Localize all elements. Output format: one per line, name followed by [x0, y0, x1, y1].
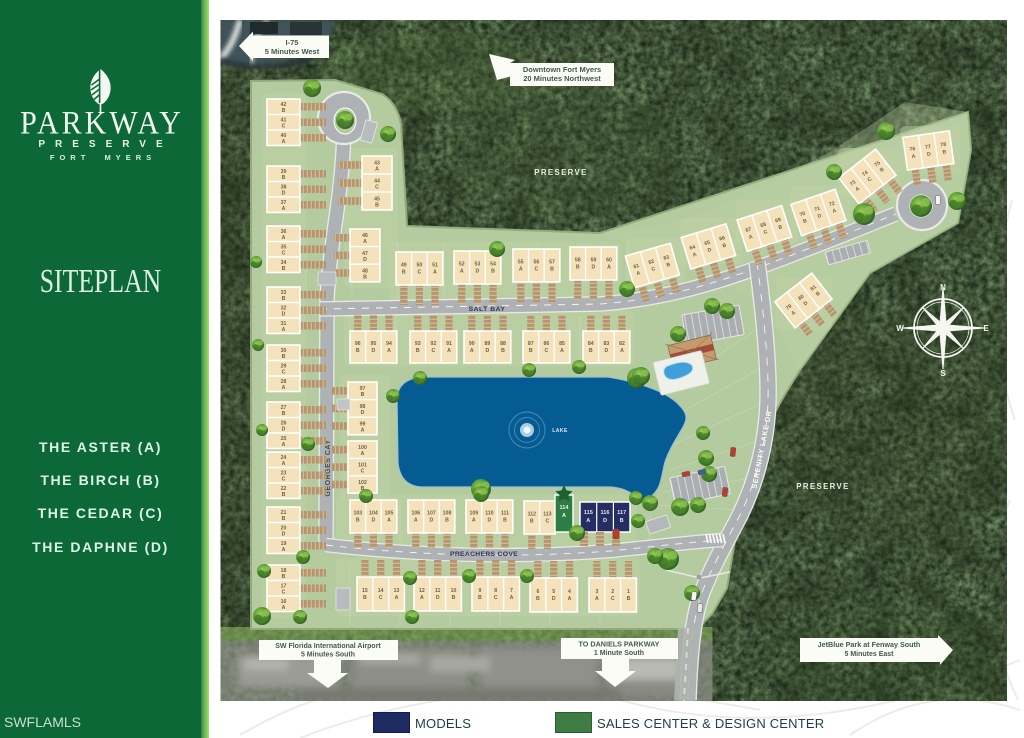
svg-text:A: A	[282, 461, 286, 467]
svg-text:95: 95	[371, 341, 377, 347]
svg-text:54: 54	[490, 261, 496, 267]
svg-text:104: 104	[369, 510, 378, 516]
svg-text:A: A	[447, 348, 451, 354]
svg-text:B: B	[282, 175, 286, 181]
svg-text:82: 82	[619, 341, 625, 347]
svg-text:B: B	[620, 518, 624, 524]
svg-text:D: D	[552, 596, 556, 602]
svg-text:6: 6	[536, 589, 539, 595]
svg-text:20 Minutes Northwest: 20 Minutes Northwest	[523, 74, 601, 83]
svg-text:3: 3	[595, 589, 598, 595]
svg-text:A: A	[586, 518, 590, 524]
svg-text:S: S	[940, 369, 946, 378]
svg-text:106: 106	[411, 510, 420, 516]
svg-text:D: D	[605, 348, 609, 354]
svg-text:78: 78	[940, 142, 947, 149]
svg-text:91: 91	[446, 341, 452, 347]
svg-text:114: 114	[559, 505, 569, 511]
svg-text:B: B	[452, 595, 456, 601]
svg-text:B: B	[356, 348, 360, 354]
svg-text:113: 113	[543, 511, 551, 517]
svg-text:111: 111	[501, 510, 509, 516]
svg-text:116: 116	[600, 510, 609, 516]
svg-text:B: B	[627, 596, 631, 602]
svg-text:52: 52	[459, 261, 465, 267]
svg-text:A: A	[414, 518, 418, 524]
svg-text:B: B	[282, 492, 286, 498]
svg-text:PREACHERS COVE: PREACHERS COVE	[450, 551, 518, 558]
svg-text:87: 87	[528, 341, 534, 347]
svg-text:15: 15	[362, 588, 368, 594]
svg-text:C: C	[546, 519, 550, 525]
svg-text:77: 77	[925, 144, 932, 151]
svg-text:D: D	[282, 532, 286, 538]
svg-text:53: 53	[475, 261, 481, 267]
svg-text:SALT BAY: SALT BAY	[469, 306, 506, 313]
svg-text:Downtown Fort Myers: Downtown Fort Myers	[523, 65, 601, 74]
svg-text:2: 2	[611, 589, 614, 595]
svg-text:13: 13	[394, 588, 400, 594]
svg-text:D: D	[372, 518, 376, 524]
svg-text:96: 96	[355, 341, 361, 347]
svg-text:PRESERVE: PRESERVE	[534, 168, 588, 177]
svg-text:A: A	[472, 518, 476, 524]
svg-text:D: D	[476, 269, 480, 275]
svg-text:A: A	[282, 605, 286, 611]
svg-text:B: B	[363, 595, 367, 601]
svg-text:58: 58	[575, 257, 581, 263]
svg-text:76: 76	[909, 146, 916, 153]
svg-text:C: C	[282, 590, 286, 596]
svg-text:112: 112	[528, 511, 536, 517]
svg-text:A: A	[470, 348, 474, 354]
svg-text:5 Minutes East: 5 Minutes East	[844, 651, 894, 658]
svg-text:A: A	[282, 442, 286, 448]
svg-text:4: 4	[568, 589, 571, 595]
svg-text:51: 51	[432, 262, 438, 268]
svg-text:B: B	[361, 392, 365, 398]
svg-text:A: A	[568, 596, 572, 602]
svg-text:B: B	[363, 274, 367, 280]
svg-text:5 Minutes South: 5 Minutes South	[301, 652, 355, 659]
svg-text:D: D	[592, 265, 596, 271]
svg-text:B: B	[282, 108, 286, 114]
svg-text:59: 59	[591, 257, 597, 263]
svg-text:B: B	[529, 348, 533, 354]
svg-text:A: A	[387, 518, 391, 524]
svg-text:LAKE: LAKE	[552, 428, 568, 434]
svg-text:D: D	[486, 348, 490, 354]
svg-text:B: B	[356, 518, 360, 524]
svg-text:7: 7	[510, 588, 513, 594]
svg-text:A: A	[363, 239, 367, 245]
svg-text:A: A	[282, 235, 286, 241]
svg-text:B: B	[550, 267, 554, 273]
svg-text:A: A	[519, 267, 523, 273]
svg-text:C: C	[361, 469, 365, 475]
svg-text:1: 1	[627, 589, 630, 595]
svg-text:B: B	[536, 596, 540, 602]
svg-text:E: E	[983, 324, 989, 333]
svg-text:D: D	[430, 518, 434, 524]
svg-text:B: B	[282, 354, 286, 360]
svg-text:108: 108	[443, 510, 452, 516]
svg-text:B: B	[282, 266, 286, 272]
svg-text:B: B	[589, 348, 593, 354]
svg-text:B: B	[282, 411, 286, 417]
svg-text:A: A	[607, 265, 611, 271]
svg-text:D: D	[603, 518, 607, 524]
svg-text:56: 56	[534, 259, 540, 265]
svg-text:D: D	[372, 348, 376, 354]
svg-text:A: A	[395, 595, 399, 601]
svg-text:C: C	[379, 595, 383, 601]
svg-text:110: 110	[485, 510, 493, 516]
svg-text:JetBlue Park at Fenway South: JetBlue Park at Fenway South	[818, 640, 921, 649]
svg-text:107: 107	[427, 510, 436, 516]
svg-text:B: B	[282, 296, 286, 302]
svg-text:50: 50	[417, 262, 423, 268]
svg-text:8: 8	[494, 588, 497, 594]
svg-text:B: B	[402, 270, 406, 276]
svg-text:92: 92	[431, 341, 437, 347]
svg-text:10: 10	[451, 588, 457, 594]
svg-text:A: A	[420, 595, 424, 601]
svg-text:A: A	[282, 139, 286, 145]
svg-text:57: 57	[549, 259, 555, 265]
svg-text:D: D	[363, 257, 367, 263]
svg-text:86: 86	[544, 341, 550, 347]
svg-text:60: 60	[606, 257, 612, 263]
svg-text:A: A	[433, 270, 437, 276]
svg-text:117: 117	[617, 510, 626, 516]
svg-text:C: C	[282, 124, 286, 130]
svg-text:B: B	[530, 519, 534, 525]
svg-text:N: N	[940, 283, 946, 292]
svg-text:90: 90	[469, 341, 475, 347]
svg-text:11: 11	[435, 588, 441, 594]
svg-text:5: 5	[552, 589, 555, 595]
svg-text:D: D	[282, 427, 286, 433]
svg-text:C: C	[282, 477, 286, 483]
svg-text:D: D	[436, 595, 440, 601]
svg-text:83: 83	[604, 341, 610, 347]
svg-text:B: B	[501, 348, 505, 354]
svg-text:C: C	[611, 596, 615, 602]
svg-text:9: 9	[478, 588, 481, 594]
svg-text:D: D	[282, 191, 286, 197]
svg-text:A: A	[361, 427, 365, 433]
svg-text:B: B	[282, 574, 286, 580]
svg-text:A: A	[387, 348, 391, 354]
svg-text:C: C	[494, 595, 498, 601]
svg-text:A: A	[560, 348, 564, 354]
svg-text:49: 49	[401, 262, 407, 268]
svg-text:C: C	[282, 251, 286, 257]
svg-text:85: 85	[559, 341, 565, 347]
svg-text:93: 93	[415, 341, 421, 347]
svg-text:B: B	[282, 516, 286, 522]
svg-text:A: A	[595, 596, 599, 602]
svg-text:88: 88	[500, 341, 506, 347]
svg-text:B: B	[576, 265, 580, 271]
svg-text:A: A	[460, 269, 464, 275]
svg-text:A: A	[282, 385, 286, 391]
svg-text:TO DANIELS PARKWAY: TO DANIELS PARKWAY	[579, 640, 660, 649]
svg-text:B: B	[491, 269, 495, 275]
svg-text:109: 109	[469, 510, 478, 516]
svg-text:A: A	[282, 327, 286, 333]
svg-text:A: A	[361, 451, 365, 457]
svg-text:B: B	[375, 202, 379, 208]
svg-text:C: C	[432, 348, 436, 354]
svg-text:C: C	[535, 267, 539, 273]
svg-text:94: 94	[386, 341, 392, 347]
svg-text:89: 89	[485, 341, 491, 347]
svg-text:105: 105	[385, 510, 394, 516]
svg-text:B: B	[445, 518, 449, 524]
svg-text:84: 84	[588, 341, 594, 347]
svg-text:A: A	[620, 348, 624, 354]
svg-text:W: W	[896, 324, 904, 333]
svg-text:D: D	[488, 518, 492, 524]
svg-text:5 Minutes West: 5 Minutes West	[265, 47, 320, 56]
svg-text:D: D	[361, 410, 365, 416]
svg-text:C: C	[375, 184, 379, 190]
svg-text:SW Florida International Airpo: SW Florida International Airport	[275, 643, 381, 650]
svg-text:14: 14	[378, 588, 384, 594]
svg-text:C: C	[545, 348, 549, 354]
svg-text:55: 55	[518, 259, 524, 265]
svg-text:PRESERVE: PRESERVE	[796, 482, 850, 491]
svg-text:GEORGES CAY: GEORGES CAY	[325, 440, 332, 497]
svg-text:C: C	[282, 370, 286, 376]
svg-text:A: A	[375, 166, 379, 172]
svg-text:115: 115	[584, 510, 593, 516]
svg-text:A: A	[282, 206, 286, 212]
svg-text:12: 12	[419, 588, 425, 594]
svg-text:B: B	[503, 518, 507, 524]
svg-text:B: B	[478, 595, 482, 601]
svg-text:A: A	[282, 547, 286, 553]
svg-text:1 Minute South: 1 Minute South	[594, 650, 644, 657]
svg-text:103: 103	[353, 510, 362, 516]
svg-text:A: A	[562, 513, 566, 519]
svg-text:B: B	[416, 348, 420, 354]
svg-text:C: C	[418, 270, 422, 276]
svg-text:A: A	[510, 595, 514, 601]
svg-text:D: D	[282, 312, 286, 318]
svg-text:I-75: I-75	[286, 38, 299, 47]
